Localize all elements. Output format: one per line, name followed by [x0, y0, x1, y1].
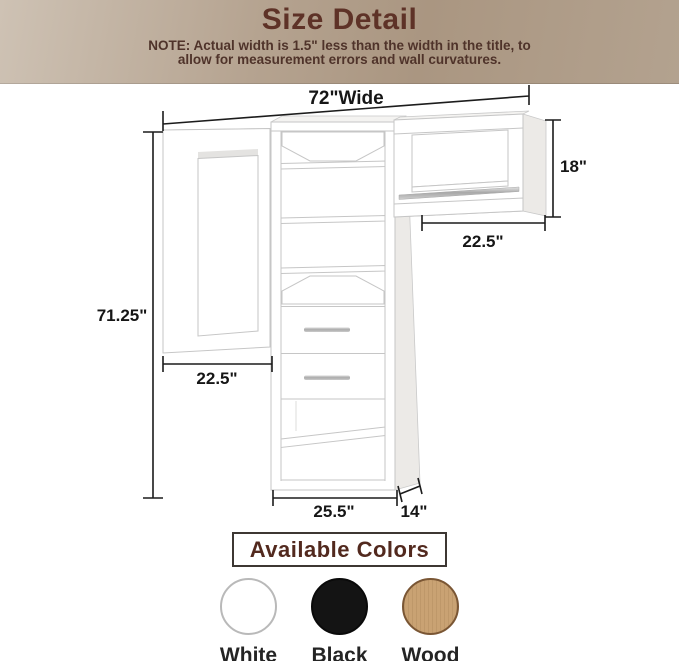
cabinet-side-face: [523, 114, 546, 216]
dimension-right-section-width: 22.5": [422, 215, 545, 251]
white-swatch-label: White: [220, 644, 277, 661]
swatch-row: White Black Wood: [213, 578, 467, 661]
cabinet-opening: [412, 130, 508, 187]
dimension-left-section-width: 22.5": [163, 356, 272, 388]
wood-color-swatch: [402, 578, 459, 635]
swatch-black: Black: [304, 578, 376, 661]
dimension-label-right-section-height: 18": [560, 157, 587, 176]
dimension-tower-width: 25.5": [273, 490, 397, 521]
swatch-white: White: [213, 578, 285, 661]
dimension-label-total-height: 71.25": [97, 306, 148, 325]
black-color-swatch: [311, 578, 368, 635]
dimension-label-tower-depth: 14": [401, 502, 428, 521]
wood-swatch-label: Wood: [402, 644, 460, 661]
dimension-label-total-width: 72"Wide: [308, 88, 383, 109]
tower-top-face: [271, 116, 406, 122]
available-colors-section: Available Colors White Black Wood: [0, 528, 679, 661]
drawer-handle-top: [304, 328, 350, 333]
dimension-label-tower-width: 25.5": [313, 502, 354, 521]
black-swatch-label: Black: [311, 644, 367, 661]
right-hanging-cabinet: [394, 111, 546, 217]
dimension-label-left-section-width: 22.5": [196, 369, 237, 388]
dimension-label-right-section-width: 22.5": [462, 232, 503, 251]
available-colors-box: Available Colors: [232, 532, 447, 567]
available-colors-title: Available Colors: [250, 537, 430, 563]
frame-opening: [198, 156, 258, 337]
dimension-total-height: 71.25": [97, 132, 163, 498]
left-hanging-frame: [163, 129, 270, 354]
size-detail-infographic: Size Detail NOTE: Actual width is 1.5" l…: [0, 0, 679, 661]
drawer-handle-bottom: [304, 376, 350, 381]
white-color-swatch: [220, 578, 277, 635]
dimension-right-section-height: 18": [545, 120, 587, 217]
swatch-wood: Wood: [395, 578, 467, 661]
